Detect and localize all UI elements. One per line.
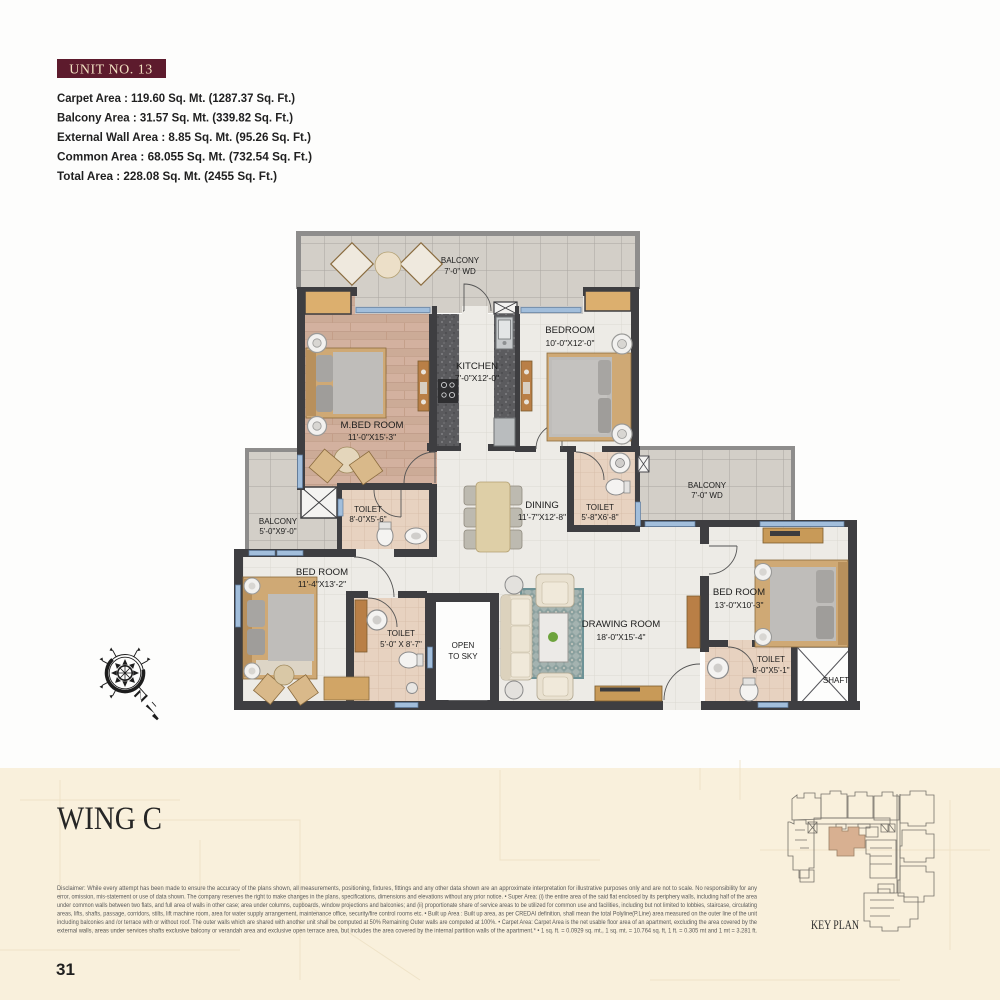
svg-text:TOILET: TOILET xyxy=(387,629,415,638)
svg-text:10'-0"X12'-0": 10'-0"X12'-0" xyxy=(546,338,595,348)
svg-text:BALCONY: BALCONY xyxy=(441,256,480,265)
svg-text:31: 31 xyxy=(56,960,75,979)
svg-text:Disclaimer: While every attemp: Disclaimer: While every attempt has been… xyxy=(57,885,758,892)
svg-text:UNIT NO. 13: UNIT NO. 13 xyxy=(69,63,152,78)
svg-text:5'-8"X6'-8": 5'-8"X6'-8" xyxy=(581,513,618,522)
svg-text:error, omission, mis-statement: error, omission, mis-statement or use of… xyxy=(57,894,757,901)
svg-text:TO SKY: TO SKY xyxy=(448,652,478,661)
svg-text:5'-0"X9'-0": 5'-0"X9'-0" xyxy=(259,527,296,536)
svg-text:TOILET: TOILET xyxy=(586,503,614,512)
svg-text:11'-0"X15'-3": 11'-0"X15'-3" xyxy=(348,432,396,442)
svg-text:areas, lifts, shafts, passage,: areas, lifts, shafts, passage, corridors… xyxy=(57,911,757,918)
svg-text:5'-0" X 8'-7": 5'-0" X 8'-7" xyxy=(380,640,422,649)
svg-text:18'-0"X15'-4": 18'-0"X15'-4" xyxy=(597,632,646,642)
svg-text:DRAWING ROOM: DRAWING ROOM xyxy=(582,619,661,630)
svg-text:11'-4"X13'-2": 11'-4"X13'-2" xyxy=(298,579,346,589)
svg-text:external walls, areas under se: external walls, areas under services sha… xyxy=(57,928,757,935)
svg-text:TOILET: TOILET xyxy=(354,505,382,514)
svg-text:7'-0" WD: 7'-0" WD xyxy=(691,491,723,500)
svg-text:OPEN: OPEN xyxy=(452,641,475,650)
svg-text:Total Area : 228.08 Sq. Mt. (: Total Area : 228.08 Sq. Mt. (2455 Sq. Ft… xyxy=(57,169,277,183)
svg-text:BALCONY: BALCONY xyxy=(688,481,727,490)
svg-text:7'-0" WD: 7'-0" WD xyxy=(444,267,476,276)
svg-text:BED ROOM: BED ROOM xyxy=(296,567,348,578)
svg-text:7'-0"X12'-0": 7'-0"X12'-0" xyxy=(455,373,499,383)
svg-text:13'-0"X10'-3": 13'-0"X10'-3" xyxy=(715,600,764,610)
svg-text:BALCONY: BALCONY xyxy=(259,517,298,526)
svg-text:under common walls between two: under common walls between two flats, an… xyxy=(57,902,757,909)
svg-text:BEDROOM: BEDROOM xyxy=(545,325,595,336)
svg-text:KEY PLAN: KEY PLAN xyxy=(811,917,859,932)
svg-text:BED ROOM: BED ROOM xyxy=(713,587,765,598)
svg-text:8'-0"X5'-1": 8'-0"X5'-1" xyxy=(752,666,789,675)
svg-text:including balconies and /or te: including balconies and /or terrace with… xyxy=(57,919,757,926)
svg-text:Balcony Area : 31.57 Sq. Mt.: Balcony Area : 31.57 Sq. Mt. (339.82 Sq.… xyxy=(57,111,293,125)
svg-text:SHAFT: SHAFT xyxy=(823,676,849,685)
svg-text:DINING: DINING xyxy=(525,500,559,511)
svg-text:8'-0"X5'-6": 8'-0"X5'-6" xyxy=(349,515,386,524)
svg-text:External Wall Area : 8.85 Sq.: External Wall Area : 8.85 Sq. Mt. (95.26… xyxy=(57,130,311,144)
svg-text:M.BED ROOM: M.BED ROOM xyxy=(341,420,404,431)
svg-text:Common Area : 68.055 Sq. Mt.: Common Area : 68.055 Sq. Mt. (732.54 Sq.… xyxy=(57,150,312,164)
svg-text:TOILET: TOILET xyxy=(757,655,785,664)
svg-text:Carpet Area : 119.60 Sq. Mt.: Carpet Area : 119.60 Sq. Mt. (1287.37 Sq… xyxy=(57,91,295,105)
svg-text:11'-7"X12'-8": 11'-7"X12'-8" xyxy=(518,512,566,522)
svg-text:WING C: WING C xyxy=(57,801,162,837)
svg-text:KITCHEN: KITCHEN xyxy=(456,361,498,372)
